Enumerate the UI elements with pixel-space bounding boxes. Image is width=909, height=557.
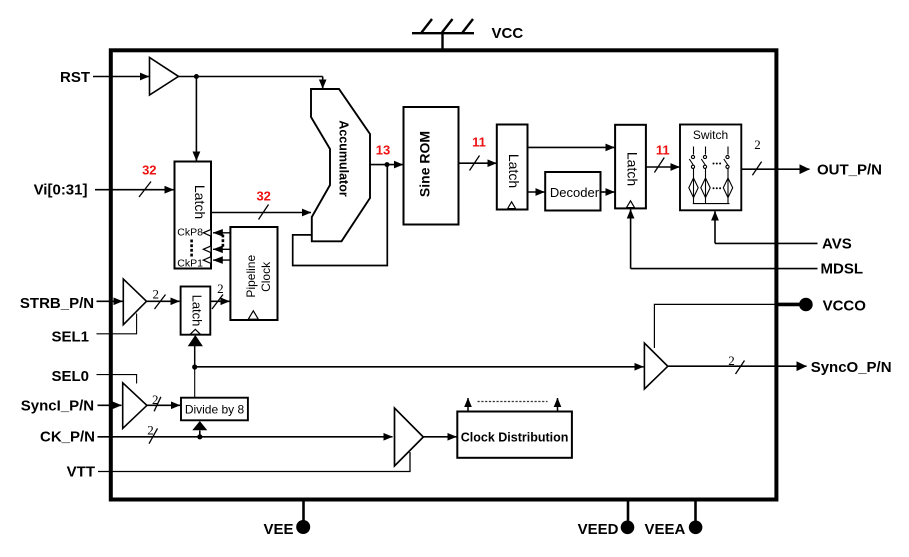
svg-text:MDSL: MDSL — [821, 261, 864, 278]
svg-text:Latch: Latch — [192, 185, 208, 219]
svg-text:CK_P/N: CK_P/N — [40, 428, 95, 445]
svg-text:32: 32 — [256, 188, 270, 203]
svg-text:2: 2 — [152, 287, 159, 302]
svg-text:VCC: VCC — [492, 25, 524, 42]
svg-text:SEL0: SEL0 — [51, 368, 89, 385]
svg-text:AVS: AVS — [822, 235, 852, 252]
svg-text:2: 2 — [147, 422, 154, 437]
svg-text:11: 11 — [656, 143, 670, 158]
svg-text:2: 2 — [728, 353, 735, 368]
svg-text:Clock Distribution: Clock Distribution — [461, 431, 569, 445]
svg-text:Sine ROM: Sine ROM — [417, 131, 433, 197]
svg-text:Divide by 8: Divide by 8 — [185, 403, 245, 417]
svg-text:SyncO_P/N: SyncO_P/N — [811, 359, 892, 376]
svg-text:2: 2 — [754, 137, 761, 152]
svg-text:CkP1: CkP1 — [177, 257, 203, 269]
svg-text:VTT: VTT — [67, 464, 95, 481]
svg-text:VEE: VEE — [263, 521, 293, 538]
svg-text:STRB_P/N: STRB_P/N — [20, 295, 94, 312]
svg-text:SEL1: SEL1 — [51, 329, 89, 346]
svg-text:Vi[0:31]: Vi[0:31] — [34, 182, 88, 199]
svg-text:VEEA: VEEA — [645, 521, 686, 538]
svg-text:Latch: Latch — [190, 295, 205, 327]
svg-text:SyncI_P/N: SyncI_P/N — [21, 398, 94, 415]
svg-text:Latch: Latch — [506, 154, 522, 188]
svg-text:OUT_P/N: OUT_P/N — [817, 162, 882, 179]
svg-text:VCCO: VCCO — [823, 297, 867, 314]
svg-text:VEED: VEED — [578, 521, 619, 538]
svg-text:Decoder: Decoder — [550, 185, 600, 200]
svg-text:2: 2 — [152, 392, 159, 407]
svg-text:Accumulator: Accumulator — [337, 120, 351, 197]
svg-text:Latch: Latch — [624, 152, 640, 186]
svg-text:2: 2 — [217, 281, 224, 296]
svg-text:Clock: Clock — [259, 261, 273, 292]
svg-text:32: 32 — [142, 163, 156, 178]
svg-text:11: 11 — [472, 135, 486, 150]
svg-text:CkP8: CkP8 — [177, 226, 203, 238]
svg-text:RST: RST — [60, 69, 90, 86]
svg-text:13: 13 — [376, 143, 390, 158]
svg-text:Switch: Switch — [693, 128, 728, 142]
svg-text:Pipeline: Pipeline — [244, 255, 258, 298]
